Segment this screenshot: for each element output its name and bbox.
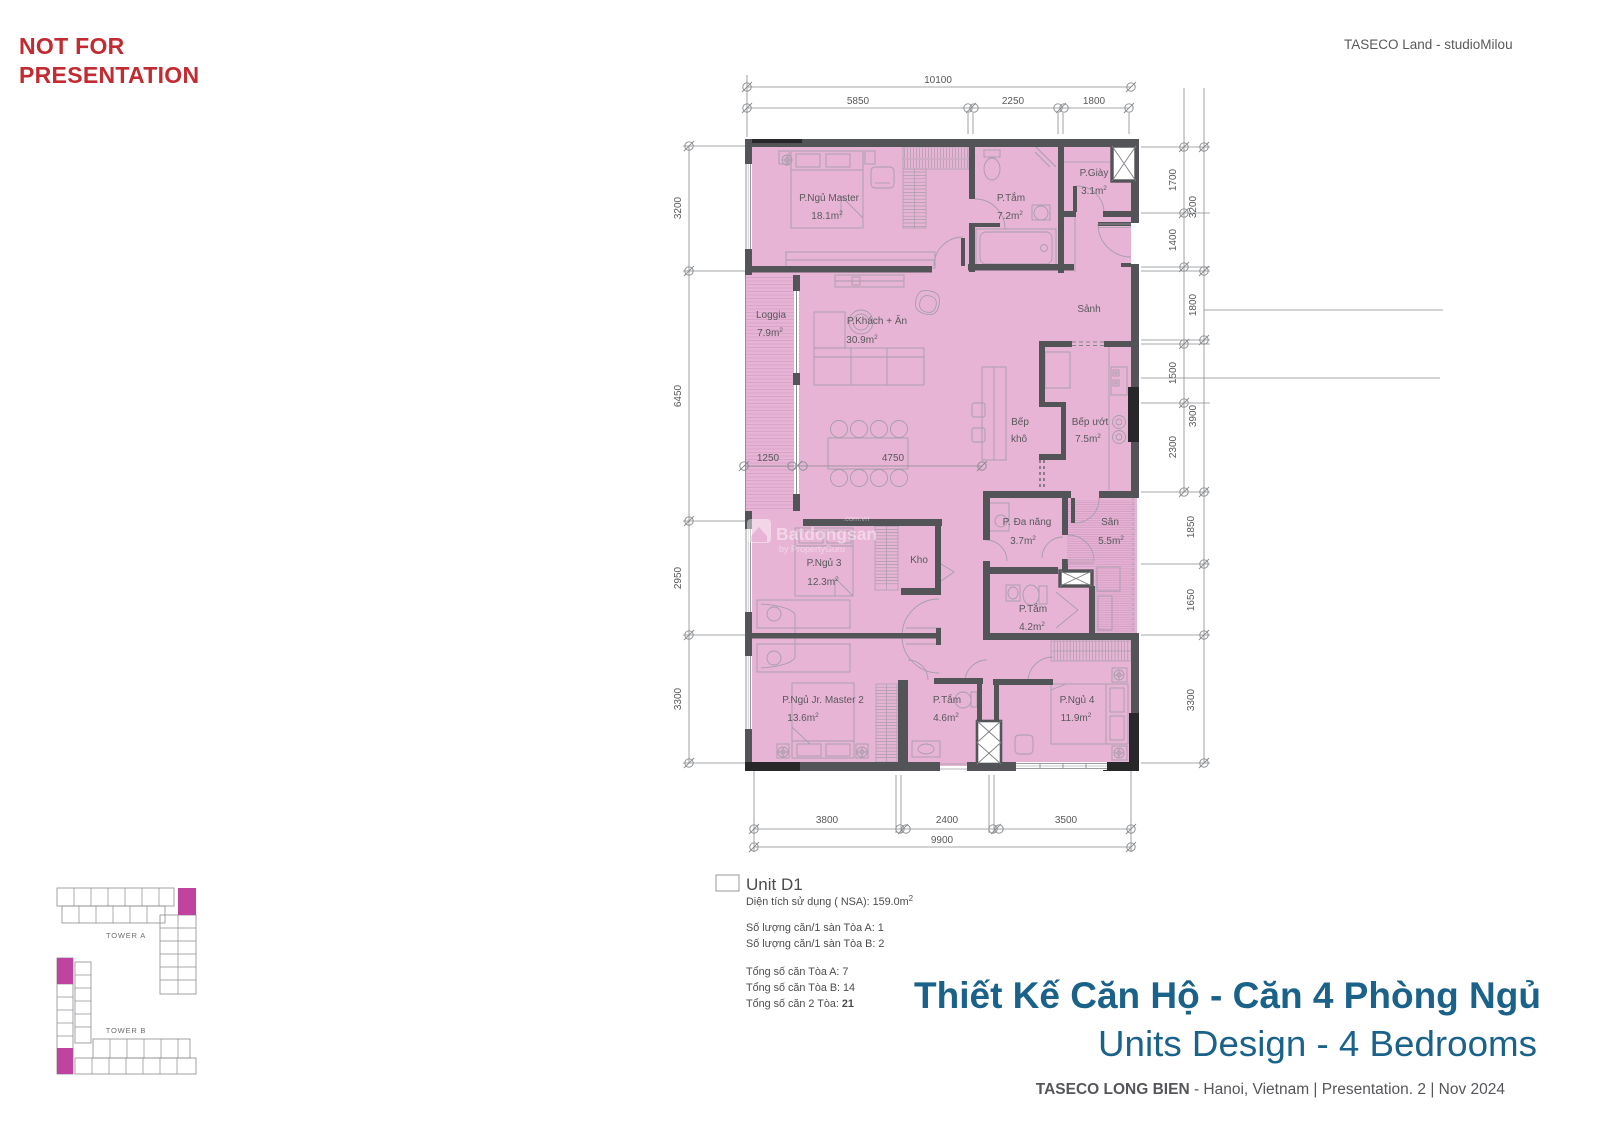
svg-text:5850: 5850: [847, 96, 870, 107]
svg-text:Unit D1: Unit D1: [746, 875, 803, 894]
svg-text:6450: 6450: [673, 384, 684, 407]
svg-text:Loggia: Loggia: [756, 310, 786, 321]
svg-text:3300: 3300: [673, 687, 684, 710]
svg-text:Thiết Kế Căn Hộ - Căn 4 Phòng: Thiết Kế Căn Hộ - Căn 4 Phòng Ngủ: [914, 975, 1541, 1016]
svg-text:P.Tắm: P.Tắm: [997, 191, 1025, 204]
svg-text:Bếp: Bếp: [1011, 416, 1029, 428]
svg-text:3800: 3800: [816, 815, 839, 826]
svg-text:3200: 3200: [1188, 195, 1199, 218]
svg-text:3200: 3200: [673, 196, 684, 219]
svg-text:P.Tắm: P.Tắm: [1019, 602, 1047, 615]
svg-text:1850: 1850: [1186, 515, 1197, 538]
svg-text:1250: 1250: [757, 453, 780, 464]
svg-text:13.6m2: 13.6m2: [787, 712, 819, 724]
svg-text:1650: 1650: [1186, 588, 1197, 611]
svg-text:1800: 1800: [1083, 96, 1106, 107]
svg-text:3900: 3900: [1188, 404, 1199, 427]
svg-text:4750: 4750: [882, 453, 905, 464]
svg-text:P.Ngủ 3: P.Ngủ 3: [807, 557, 842, 569]
svg-text:Số lượng căn/1 sàn Tòa B: 2: Số lượng căn/1 sàn Tòa B: 2: [746, 938, 884, 950]
svg-text:PRESENTATION: PRESENTATION: [19, 62, 199, 88]
svg-text:1500: 1500: [1168, 361, 1179, 384]
svg-text:P.Tắm: P.Tắm: [933, 693, 961, 706]
svg-text:Sảnh: Sảnh: [1077, 304, 1100, 315]
svg-text:30.9m2: 30.9m2: [846, 334, 878, 346]
svg-text:Kho: Kho: [910, 555, 928, 566]
svg-text:Số lượng căn/1 sàn Tòa A: 1: Số lượng căn/1 sàn Tòa A: 1: [746, 922, 884, 934]
svg-text:TOWER B: TOWER B: [106, 1026, 146, 1035]
svg-text:1800: 1800: [1188, 293, 1199, 316]
svg-text:1700: 1700: [1168, 168, 1179, 191]
svg-text:by PropertyGuru: by PropertyGuru: [779, 544, 845, 554]
svg-text:2250: 2250: [1002, 96, 1025, 107]
svg-text:P.Giày: P.Giày: [1080, 168, 1109, 179]
svg-text:11.9m2: 11.9m2: [1061, 712, 1092, 724]
svg-text:Sân: Sân: [1101, 517, 1119, 528]
svg-text:Tổng số căn 2 Tòa: 21: Tổng số căn 2 Tòa: 21: [746, 998, 854, 1010]
svg-text:10100: 10100: [924, 75, 952, 86]
svg-text:Bếp ướt: Bếp ướt: [1072, 416, 1109, 428]
svg-text:12.3m2: 12.3m2: [807, 576, 839, 588]
svg-text:3300: 3300: [1186, 688, 1197, 711]
svg-text:9900: 9900: [931, 835, 954, 846]
svg-text:TASECO Land - studioMilou: TASECO Land - studioMilou: [1344, 37, 1513, 52]
svg-text:1400: 1400: [1168, 228, 1179, 251]
svg-text:TOWER A: TOWER A: [106, 931, 146, 940]
svg-text:.com.vn: .com.vn: [843, 514, 869, 523]
svg-text:2950: 2950: [673, 566, 684, 589]
svg-text:18.1m2: 18.1m2: [811, 210, 843, 222]
svg-text:P.Khách + Ăn: P.Khách + Ăn: [847, 314, 907, 327]
svg-text:P.Ngủ Master: P.Ngủ Master: [799, 192, 860, 204]
svg-text:Units Design - 4 Bedrooms: Units Design - 4 Bedrooms: [1098, 1023, 1537, 1064]
svg-text:3500: 3500: [1055, 815, 1078, 826]
svg-text:NOT FOR: NOT FOR: [19, 33, 125, 59]
svg-text:Batdongsan: Batdongsan: [776, 524, 877, 544]
svg-text:P. Đa năng: P. Đa năng: [1003, 517, 1052, 528]
svg-text:Diện tích sử dụng ( NSA): 159.: Diện tích sử dụng ( NSA): 159.0m2: [746, 894, 914, 908]
svg-text:P.Ngủ Jr. Master 2: P.Ngủ Jr. Master 2: [782, 694, 864, 706]
svg-text:Tổng số căn Tòa B: 14: Tổng số căn Tòa B: 14: [746, 982, 855, 994]
svg-text:2300: 2300: [1168, 435, 1179, 458]
svg-text:2400: 2400: [936, 815, 959, 826]
svg-text:khô: khô: [1011, 434, 1028, 445]
svg-text:Tổng số căn Tòa A: 7: Tổng số căn Tòa A: 7: [746, 966, 848, 978]
svg-text:TASECO LONG BIEN - Hanoi, Viet: TASECO LONG BIEN - Hanoi, Vietnam | Pres…: [1036, 1081, 1506, 1098]
svg-text:P.Ngủ 4: P.Ngủ 4: [1060, 694, 1095, 706]
